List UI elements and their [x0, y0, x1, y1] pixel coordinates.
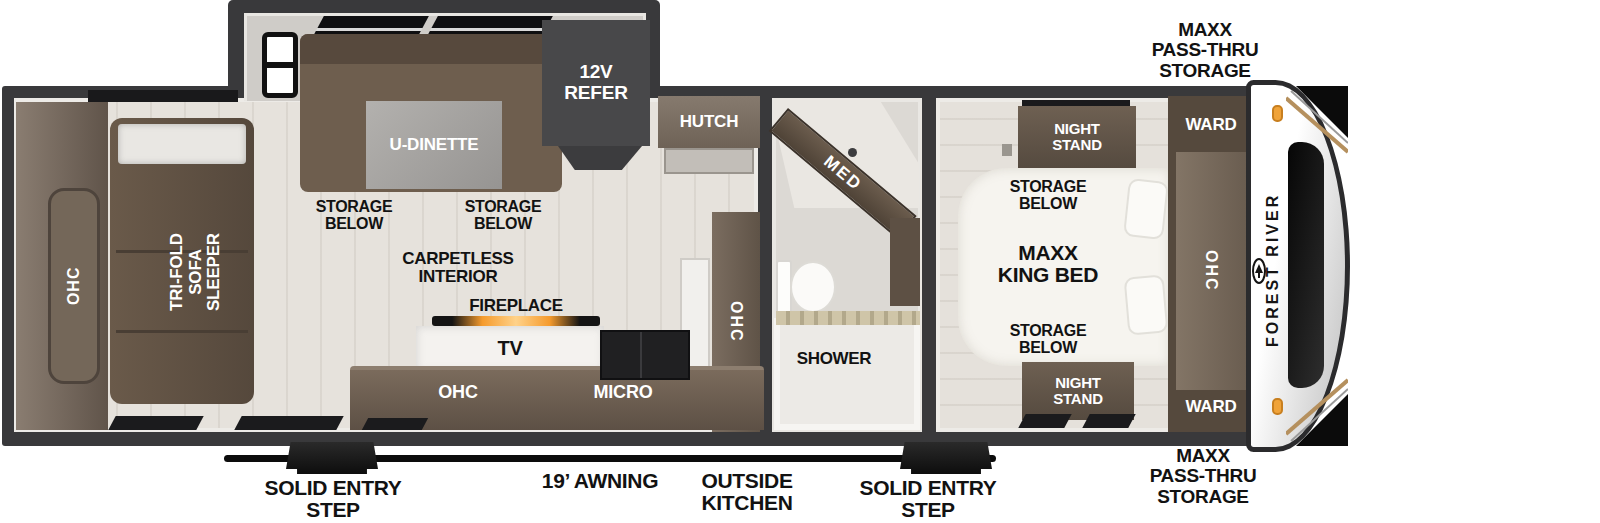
dinette-table: U-DINETTE	[366, 101, 502, 189]
kitchen-bottom-window	[362, 418, 428, 430]
pass-thru-storage-bottom-label: MAXX PASS-THRU STORAGE	[1108, 446, 1298, 507]
night-stand-bottom-label: NIGHT STAND	[1053, 375, 1103, 408]
brand-logo-icon	[1252, 258, 1266, 284]
bed-pillow	[1123, 178, 1169, 240]
entry-step-left-label: SOLID ENTRY STEP	[233, 477, 433, 522]
front-windshield	[1288, 142, 1324, 388]
outside-kitchen-label: OUTSIDE KITCHEN	[662, 470, 832, 515]
bed-pillow	[1124, 274, 1169, 335]
rear-ohc-label: OHC	[65, 267, 83, 306]
slideout-side-window	[262, 32, 298, 98]
floorplan-diagram: OHC TRI-FOLD SOFA SLEEPER U-DINETTE 12V …	[0, 0, 1600, 523]
bedroom-wall-control	[1002, 144, 1012, 156]
shower-stall	[774, 318, 920, 430]
ward-bottom-label: WARD	[1168, 398, 1254, 417]
sofa-counter-top	[118, 124, 246, 164]
bedroom-ohc-label: OHC	[1202, 250, 1220, 292]
kitchen-ohc-label: OHC	[408, 383, 508, 403]
entry-step-right	[900, 442, 992, 474]
entry-step-left	[286, 442, 378, 474]
pantry-ohc-label: OHC	[727, 301, 745, 343]
marker-light	[1272, 105, 1283, 122]
refrigerator: 12V REFER	[542, 20, 650, 146]
rear-ohc-cabinet-panel: OHC	[48, 188, 100, 384]
fireplace-label: FIREPLACE	[436, 297, 596, 315]
hutch-cabinet: HUTCH	[658, 96, 760, 148]
bedroom-ohc-cabinet: OHC	[1176, 152, 1246, 390]
storage-below-left-label: STORAGE BELOW	[294, 198, 414, 232]
storage-below-right-label: STORAGE BELOW	[443, 198, 563, 232]
vanity-sink	[848, 148, 857, 157]
tv-label: TV	[498, 338, 523, 359]
micro-label: MICRO	[568, 383, 678, 403]
bath-side-cabinet	[890, 218, 920, 306]
sofa-label: TRI-FOLD SOFA SLEEPER	[168, 222, 224, 322]
night-stand-top: NIGHT STAND	[1018, 106, 1136, 168]
rear-window	[88, 90, 238, 102]
bed-storage-top-label: STORAGE BELOW	[988, 178, 1108, 212]
bedroom-bottom-window	[1018, 414, 1071, 428]
dinette-backrest	[300, 34, 562, 64]
bed-storage-bottom-label: STORAGE BELOW	[988, 322, 1108, 356]
brand-wordmark: FOREST RIVER	[1264, 150, 1286, 390]
bedroom-bottom-window	[1082, 414, 1135, 428]
shower-label: SHOWER	[778, 350, 890, 368]
pass-thru-storage-top-label: MAXX PASS-THRU STORAGE	[1110, 20, 1300, 81]
toilet-bowl	[790, 261, 836, 313]
hutch-label: HUTCH	[680, 113, 739, 132]
shower-door	[776, 311, 920, 325]
rear-bottom-window	[108, 416, 203, 430]
rear-bottom-window	[234, 416, 343, 430]
hutch-counter	[664, 148, 754, 174]
carpetless-interior-label: CARPETLESS INTERIOR	[388, 250, 528, 286]
marker-light	[1272, 398, 1283, 415]
range-stove	[600, 330, 690, 380]
fireplace-insert	[432, 316, 600, 326]
entry-step-right-label: SOLID ENTRY STEP	[828, 477, 1028, 522]
dinette-label: U-DINETTE	[390, 136, 479, 155]
king-bed-label: MAXX KING BED	[978, 242, 1118, 287]
night-stand-top-label: NIGHT STAND	[1052, 121, 1102, 154]
ward-top-label: WARD	[1168, 116, 1254, 135]
refer-label: 12V REFER	[564, 62, 627, 104]
night-stand-bottom: NIGHT STAND	[1022, 362, 1134, 420]
